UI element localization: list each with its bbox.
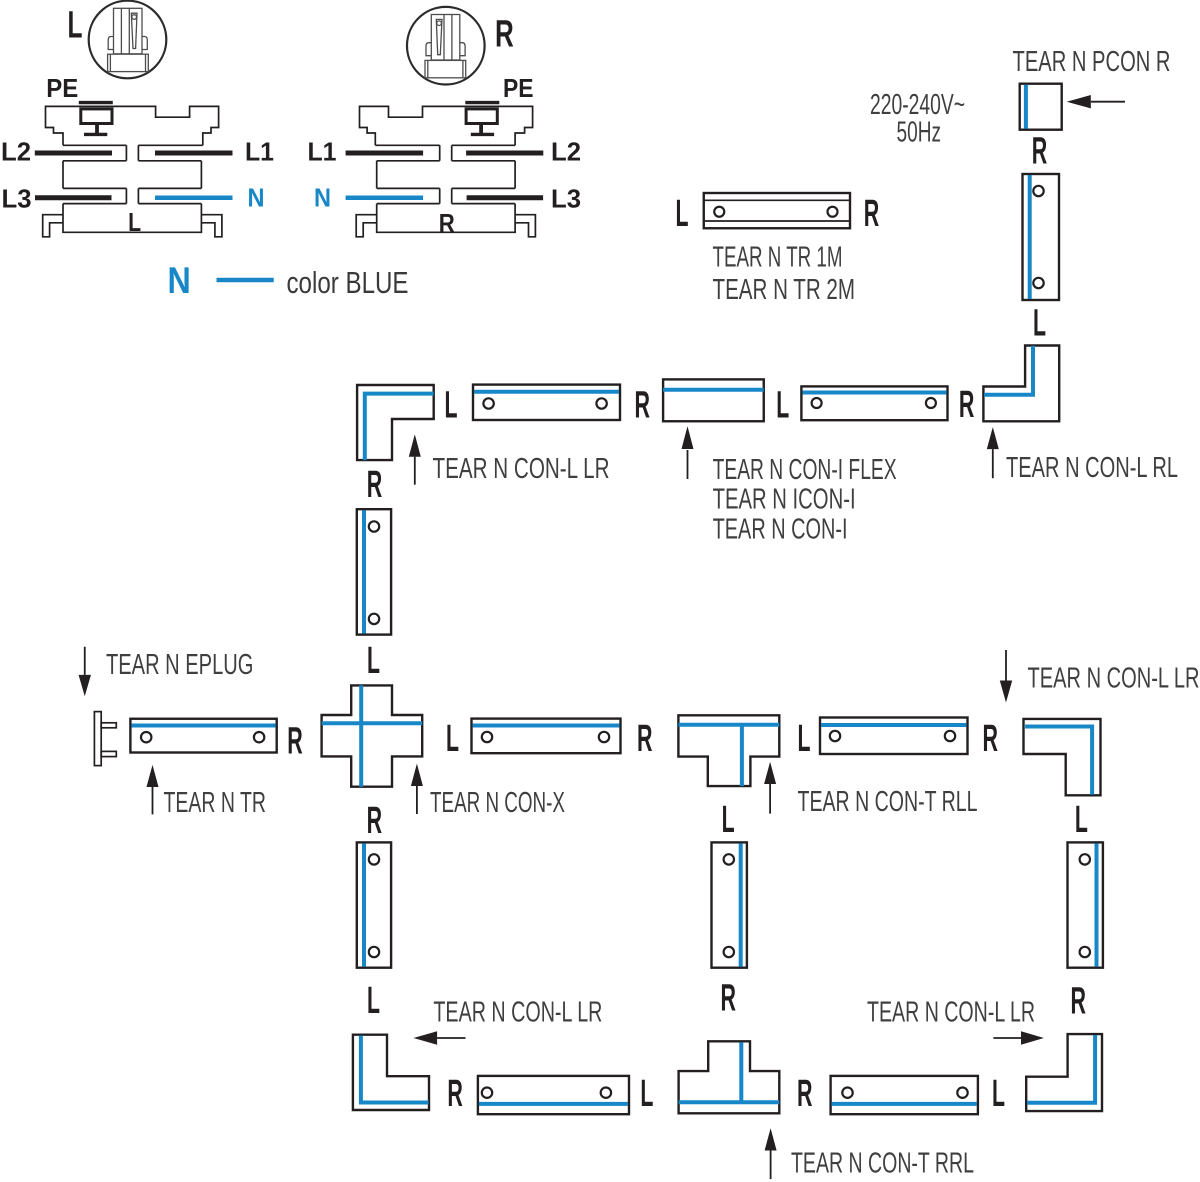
svg-text:L: L	[367, 980, 380, 1022]
svg-text:TEAR N CON-L LR: TEAR N CON-L LR	[433, 453, 610, 485]
svg-text:R: R	[721, 978, 737, 1020]
svg-text:R: R	[983, 718, 999, 760]
svg-text:N: N	[168, 260, 191, 301]
svg-text:L2: L2	[551, 137, 581, 167]
svg-text:L: L	[367, 640, 380, 682]
svg-text:L: L	[445, 385, 458, 427]
svg-text:TEAR N TR 1M: TEAR N TR 1M	[713, 241, 843, 273]
svg-text:TEAR N CON-X: TEAR N CON-X	[430, 787, 565, 819]
svg-text:L: L	[128, 207, 141, 237]
svg-text:TEAR N CON-T RRL: TEAR N CON-T RRL	[791, 1148, 974, 1180]
svg-text:L: L	[1033, 303, 1046, 345]
svg-text:PE: PE	[46, 73, 78, 103]
svg-text:color BLUE: color BLUE	[287, 265, 409, 300]
svg-text:TEAR N CON-L LR: TEAR N CON-L LR	[867, 997, 1035, 1029]
svg-text:R: R	[495, 13, 514, 55]
svg-text:R: R	[864, 193, 880, 235]
svg-text:L2: L2	[1, 137, 31, 167]
svg-text:L: L	[798, 718, 811, 760]
svg-text:R: R	[959, 384, 975, 426]
svg-text:L: L	[640, 1073, 653, 1115]
svg-text:TEAR N CON-L LR: TEAR N CON-L LR	[1028, 663, 1200, 695]
svg-text:TEAR N CON-L RL: TEAR N CON-L RL	[1006, 452, 1178, 484]
svg-text:R: R	[287, 721, 303, 763]
svg-text:R: R	[635, 385, 651, 427]
svg-text:R: R	[439, 208, 455, 238]
svg-text:TEAR N CON-I: TEAR N CON-I	[713, 513, 848, 545]
svg-text:R: R	[447, 1073, 463, 1115]
svg-text:L: L	[722, 799, 735, 841]
svg-text:L1: L1	[245, 137, 274, 167]
svg-text:L: L	[446, 718, 459, 760]
svg-text:L3: L3	[551, 184, 581, 214]
svg-text:R: R	[1071, 981, 1087, 1023]
svg-text:L3: L3	[2, 184, 32, 214]
svg-text:N: N	[314, 183, 331, 213]
svg-text:L1: L1	[308, 137, 337, 167]
svg-text:TEAR N CON-I FLEX: TEAR N CON-I FLEX	[713, 454, 897, 486]
svg-text:TEAR N EPLUG: TEAR N EPLUG	[106, 649, 253, 681]
svg-text:L: L	[776, 385, 789, 427]
svg-text:R: R	[367, 464, 383, 506]
svg-text:L: L	[992, 1073, 1005, 1115]
svg-text:R: R	[797, 1073, 813, 1115]
svg-text:TEAR N CON-T RLL: TEAR N CON-T RLL	[798, 786, 978, 818]
svg-text:50Hz: 50Hz	[897, 117, 942, 149]
svg-text:TEAR N CON-L LR: TEAR N CON-L LR	[433, 997, 602, 1029]
svg-text:L: L	[68, 5, 83, 47]
svg-text:TEAR N ICON-I: TEAR N ICON-I	[713, 484, 856, 516]
svg-text:R: R	[637, 718, 653, 760]
svg-text:TEAR N TR 2M: TEAR N TR 2M	[713, 274, 856, 306]
svg-text:R: R	[1032, 130, 1048, 172]
svg-text:TEAR N PCON R: TEAR N PCON R	[1013, 46, 1171, 78]
svg-text:L: L	[1075, 799, 1088, 841]
svg-text:TEAR N TR: TEAR N TR	[164, 787, 266, 819]
svg-text:L: L	[676, 193, 689, 235]
svg-text:PE: PE	[503, 73, 534, 103]
svg-text:R: R	[367, 800, 383, 842]
svg-text:N: N	[248, 183, 265, 213]
